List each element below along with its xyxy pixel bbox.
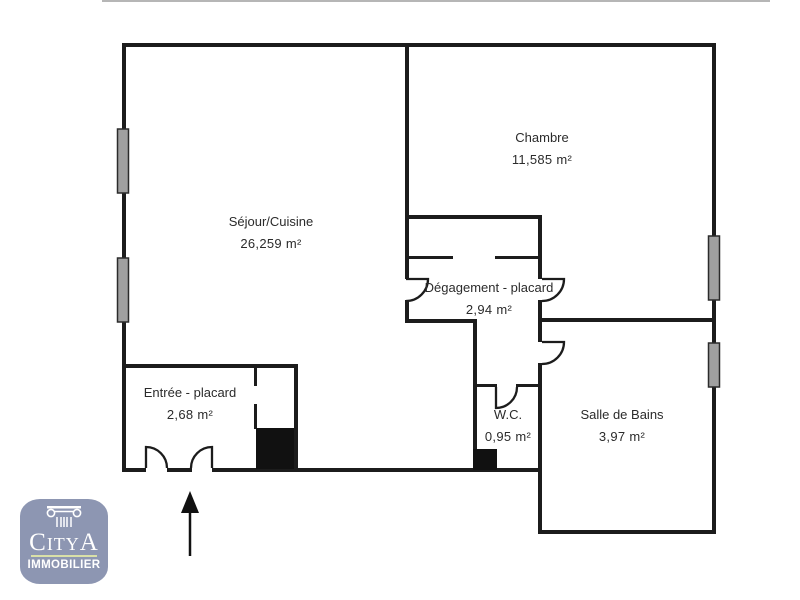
window-right-chambre xyxy=(709,236,720,300)
entrance-door-left xyxy=(146,447,167,468)
entrance-door-right xyxy=(191,447,212,468)
door-bathroom xyxy=(542,342,564,364)
wall-bottom-a xyxy=(122,468,146,472)
logo-brand-text: CityA xyxy=(20,532,108,553)
window-left-upper xyxy=(118,129,129,193)
room-area: 2,68 m² xyxy=(70,407,310,422)
closet-front-line-b xyxy=(495,256,541,259)
duct-block-entree xyxy=(256,428,294,469)
entree-closet-divider-a xyxy=(254,364,257,386)
room-area: 3,97 m² xyxy=(502,429,742,444)
wall-entree-top xyxy=(122,364,298,368)
wall-wc-top-a xyxy=(473,384,497,387)
logo-tagline-text: IMMOBILIER xyxy=(20,559,108,571)
room-label-degagement: Dégagement - placard 2,94 m² xyxy=(369,280,609,317)
room-name: Séjour/Cuisine xyxy=(151,214,391,229)
room-area: 26,259 m² xyxy=(151,236,391,251)
window-left-lower xyxy=(118,258,129,322)
room-area: 2,94 m² xyxy=(369,302,609,317)
room-label-chambre: Chambre 11,585 m² xyxy=(422,130,662,167)
wall-degagement-top xyxy=(405,215,542,219)
entrance-arrow-icon xyxy=(181,491,199,556)
room-area: 11,585 m² xyxy=(422,152,662,167)
arrow-head xyxy=(181,491,199,513)
room-label-sdb: Salle de Bains 3,97 m² xyxy=(502,407,742,444)
room-name: Chambre xyxy=(422,130,662,145)
wall-chambre-bathroom xyxy=(538,318,716,322)
floorplan-page: Séjour/Cuisine 26,259 m² Chambre 11,585 … xyxy=(0,0,800,600)
wall-sejour-chambre xyxy=(405,43,409,279)
wall-bathroom-bottom xyxy=(538,530,716,534)
wall-top xyxy=(122,43,716,47)
wall-degagement-right-upper xyxy=(538,215,542,279)
window-right-bathroom xyxy=(709,343,720,387)
room-label-entree: Entrée - placard 2,68 m² xyxy=(70,385,310,422)
wall-wc-top-b xyxy=(516,384,542,387)
wall-bottom-stub xyxy=(167,468,192,472)
room-label-sejour: Séjour/Cuisine 26,259 m² xyxy=(151,214,391,251)
closet-front-line-a xyxy=(408,256,453,259)
room-name: Salle de Bains xyxy=(502,407,742,422)
wall-bathroom-left-lower xyxy=(538,468,542,534)
room-name: Dégagement - placard xyxy=(369,280,609,295)
wall-degagement-bottom xyxy=(405,319,477,323)
ionic-column-icon xyxy=(42,505,86,528)
duct-block-wc xyxy=(473,449,497,470)
room-name: Entrée - placard xyxy=(70,385,310,400)
citya-logo-badge: CityA IMMOBILIER xyxy=(20,499,108,584)
door-wc xyxy=(496,387,517,408)
